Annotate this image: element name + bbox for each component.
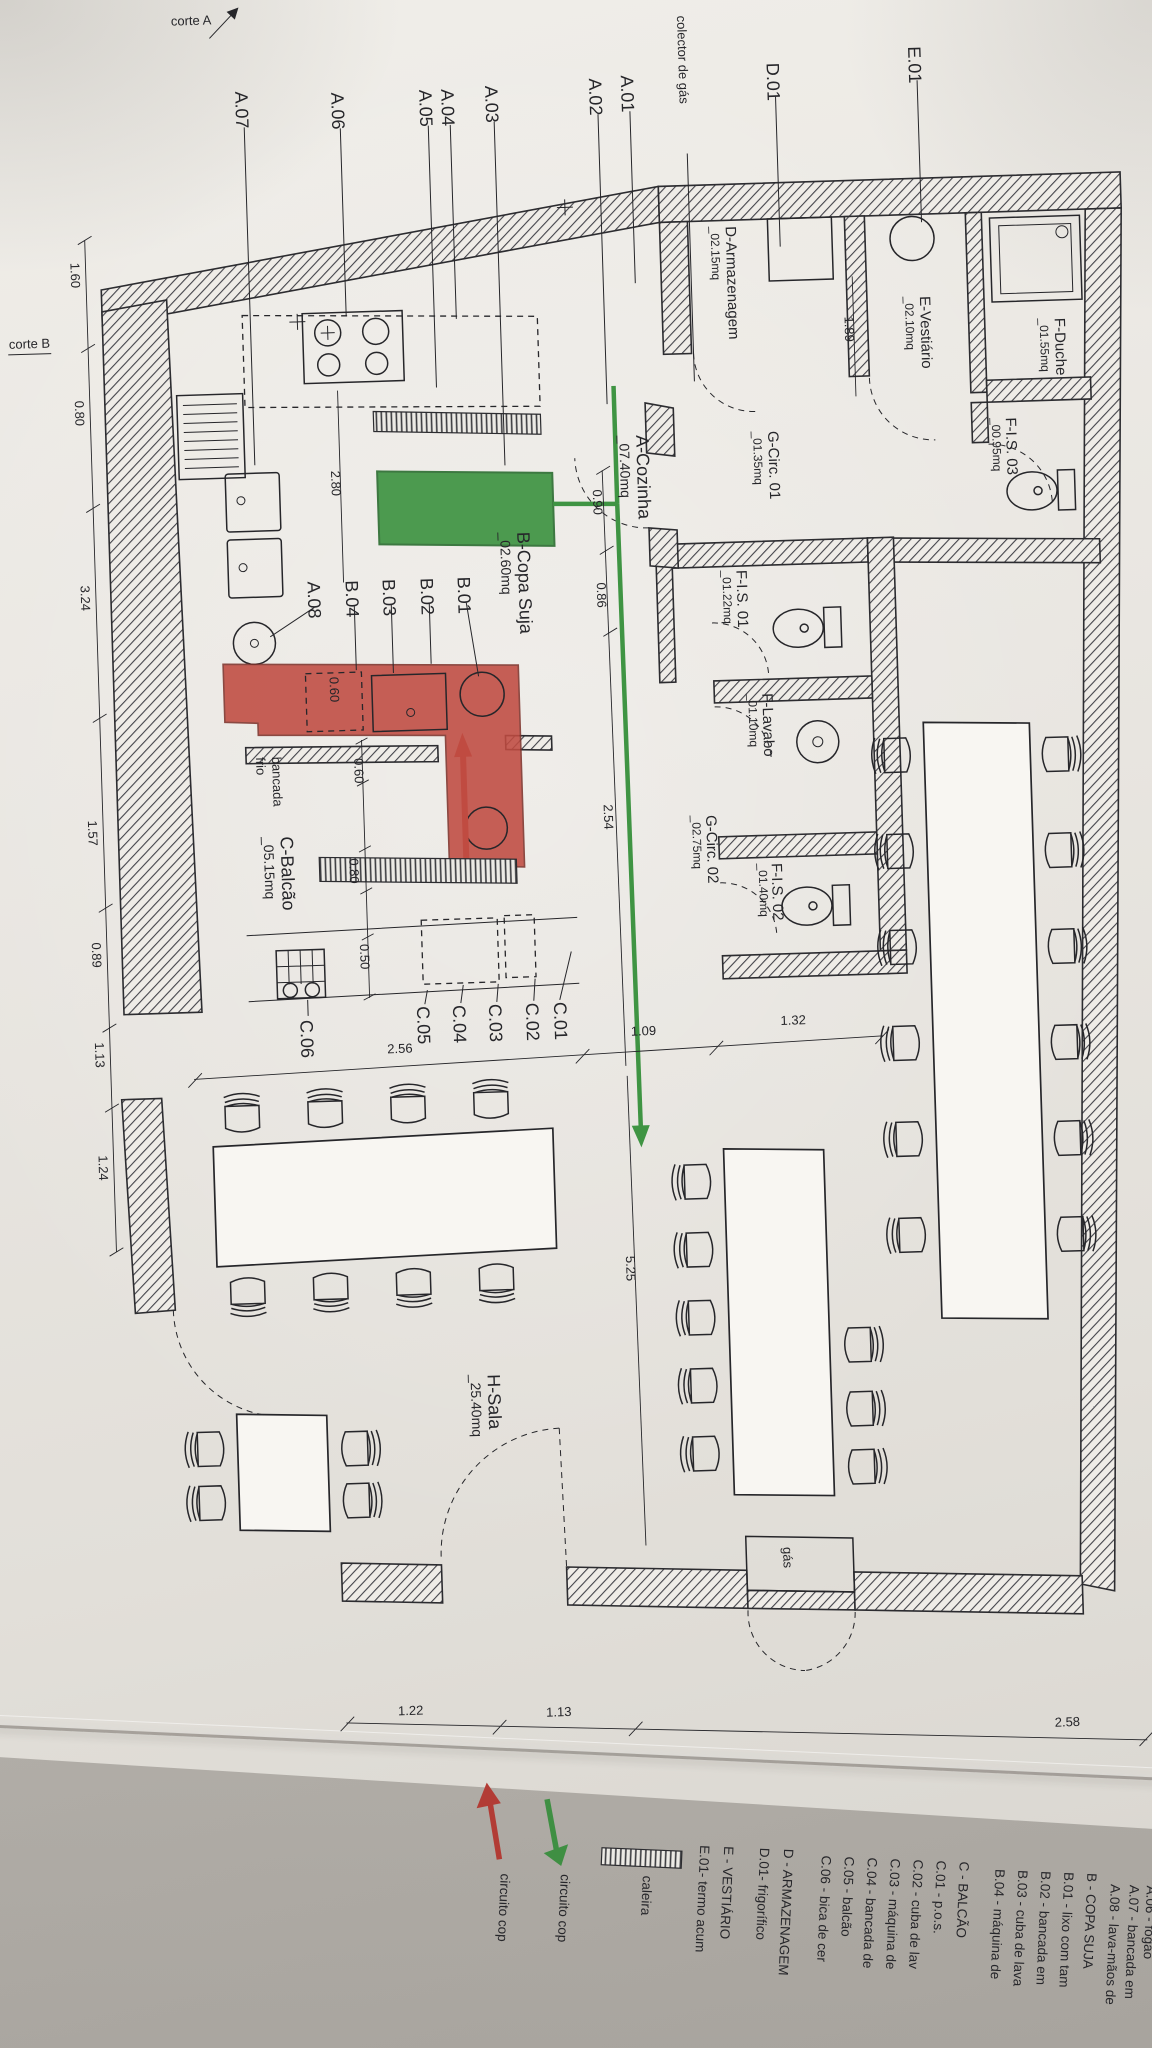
callout-b02: B.02	[416, 578, 437, 616]
svg-text:C-Balcão: C-Balcão	[277, 836, 299, 911]
svg-text:D.01- frigorífico: D.01- frigorífico	[753, 1847, 772, 1940]
counter-hatch-bar	[373, 406, 541, 439]
toilet-icon-is02	[781, 885, 850, 927]
svg-text:C.05 - balcão: C.05 - balcão	[838, 1856, 856, 1937]
svg-text:E-Vestiário: E-Vestiário	[916, 296, 935, 369]
toilet-icon-is03	[1006, 470, 1075, 512]
table-long-left	[213, 1128, 557, 1267]
label-circ02: G-Circ. 02 _02.75mq	[689, 814, 721, 884]
svg-text:frio: frio	[253, 757, 269, 776]
svg-text:caleira: caleira	[638, 1875, 655, 1916]
svg-text:_01.22mq: _01.22mq	[719, 569, 735, 624]
dim-254: 2.54	[601, 804, 617, 830]
c06-tap-icon	[276, 949, 325, 998]
label-circ01: G-Circ. 01 _01.35mq	[750, 430, 783, 500]
svg-text:C.03 - máquina de: C.03 - máquina de	[883, 1858, 903, 1970]
dim-189: 1.89	[841, 316, 857, 342]
label-bancada-frio: bancada frio	[253, 756, 286, 808]
dim-mid-2: 1.32	[780, 1012, 806, 1028]
table-long-right	[923, 719, 1048, 1322]
callout-a05: A.05	[415, 89, 436, 127]
callout-c02: C.02	[522, 1002, 543, 1041]
dim-bottom-2: 2.58	[1054, 1714, 1080, 1730]
svg-text:B.03 - cuba de lava: B.03 - cuba de lava	[1010, 1870, 1030, 1987]
svg-text:_02.15mq: _02.15mq	[708, 225, 724, 280]
toilet-icon-is01	[773, 607, 842, 649]
callouts: A.07 A.06 A.05 A.04 A.03 A.02 A.01 colec…	[229, 8, 955, 1059]
svg-text:G-Circ. 01: G-Circ. 01	[764, 431, 783, 500]
callout-a04: A.04	[437, 89, 458, 127]
svg-text:B.02 - bancada em: B.02 - bancada em	[1033, 1871, 1053, 1986]
callout-b01: B.01	[453, 576, 474, 614]
callout-c01: C.01	[550, 1002, 571, 1041]
corte-a-label: corte A	[171, 12, 212, 28]
svg-text:H-Sala: H-Sala	[484, 1374, 506, 1431]
dim-060-balcao: 0.60	[351, 758, 367, 784]
svg-text:A.07 - bancada em: A.07 - bancada em	[1122, 1885, 1142, 2000]
fridge-icon	[767, 217, 833, 281]
svg-text:_02.10mq: _02.10mq	[902, 295, 918, 350]
sink-icon	[225, 472, 283, 598]
svg-text:B.04 - máquina de: B.04 - máquina de	[988, 1869, 1008, 1980]
callout-a06: A.06	[327, 92, 348, 130]
stove-icon	[302, 311, 404, 384]
svg-text:_07.40mq: _07.40mq	[616, 434, 634, 498]
lavabo-basin-icon	[796, 720, 839, 763]
svg-text:B.01 - lixo com tam: B.01 - lixo com tam	[1056, 1872, 1076, 1988]
legend-circuit-green: circuito cop	[540, 1799, 576, 1942]
svg-text:A.08 - lava-mãos de: A.08 - lava-mãos de	[1103, 1884, 1123, 2005]
hand-wash-basin-icon	[233, 622, 276, 665]
callout-c06: C.06	[296, 1020, 317, 1059]
table-small	[237, 1411, 331, 1534]
svg-text:_00.95mq: _00.95mq	[989, 417, 1005, 472]
callout-d01: D.01	[762, 62, 783, 101]
callout-a08: A.08	[304, 581, 325, 619]
callout-a01: A.01	[617, 75, 638, 113]
svg-text:B - COPA SUJA: B - COPA SUJA	[1080, 1873, 1099, 1969]
callout-a02: A.02	[585, 78, 606, 116]
dim-left-5: 1.13	[92, 1042, 108, 1068]
callout-b04: B.04	[342, 580, 363, 618]
shower-icon	[989, 215, 1082, 302]
label-balcao: C-Balcão _05.15mq	[260, 835, 298, 911]
callout-a07: A.07	[231, 91, 252, 129]
label-sala: H-Sala _25.40mq	[467, 1373, 505, 1437]
label-vestiario: E-Vestiário _02.10mq	[902, 295, 935, 369]
dim-left-2: 3.24	[78, 585, 94, 611]
plan-group: gás	[0, 0, 1152, 1780]
caleira-swatch-icon	[601, 1848, 682, 1868]
dim-050: 0.50	[357, 944, 373, 970]
legend: circuito cop circuito cop caleira E.01- …	[469, 1782, 1152, 2007]
label-duche: F-Duche _01.55mq	[1037, 317, 1070, 376]
dim-090: 0.90	[590, 489, 606, 515]
svg-text:E - VESTIÁRIO: E - VESTIÁRIO	[717, 1846, 736, 1940]
dim-left-4: 0.89	[89, 942, 105, 968]
svg-text:_01.10mq: _01.10mq	[745, 693, 761, 748]
wall-bottom-b	[567, 1561, 748, 1614]
callout-e01: E.01	[904, 46, 925, 84]
wall-bottom-c	[854, 1565, 1083, 1621]
label-cozinha: A-Cozinha _07.40mq	[616, 434, 655, 521]
dim-left-1: 0.80	[72, 400, 88, 426]
svg-text:_01.35mq: _01.35mq	[750, 430, 766, 485]
wall-bottom-a	[341, 1560, 442, 1606]
label-is02: F-I.S. 02 _01.40mq	[756, 862, 787, 921]
dim-left-3: 1.57	[85, 820, 101, 846]
wall-left	[102, 300, 202, 1015]
dim-bottom-0: 1.22	[398, 1703, 424, 1719]
svg-text:D - ARMAZENAGEM: D - ARMAZENAGEM	[776, 1849, 797, 1976]
dim-mid-1: 1.09	[631, 1023, 657, 1039]
red-arrow-icon	[477, 1782, 502, 1809]
label-armazenagem: D-Armazenagem _02.15mq	[708, 225, 743, 340]
dim-525: 5.25	[623, 1256, 639, 1282]
svg-text:E.01- termo acum: E.01- termo acum	[693, 1845, 713, 1953]
grill-icon	[177, 394, 246, 480]
svg-text:_25.40mq: _25.40mq	[467, 1374, 485, 1438]
wall-left-stub	[122, 1098, 176, 1313]
green-circuit-arrow-icon	[632, 1125, 651, 1148]
svg-text:C - BALCÃO: C - BALCÃO	[953, 1861, 971, 1938]
callout-c04: C.04	[449, 1005, 470, 1044]
label-copa-suja: B-Copa Suja _02.60mq	[497, 531, 536, 636]
label-lavabo: F-Lavabo _01.10mq	[745, 692, 777, 757]
wall-right	[1037, 208, 1152, 1592]
table-long-middle	[724, 1146, 835, 1499]
legend-circuit-red: circuito cop	[471, 1782, 517, 1942]
legend-caleira: caleira	[599, 1848, 682, 1918]
dim-mid-0: 2.56	[387, 1041, 413, 1057]
callout-c03: C.03	[485, 1004, 506, 1043]
svg-text:C.06 - bica de cer: C.06 - bica de cer	[814, 1855, 834, 1963]
floor-plan-photo: gás	[0, 0, 1152, 2048]
svg-text:circuito cop: circuito cop	[495, 1873, 513, 1942]
counter-outline	[242, 306, 540, 415]
svg-text:bancada: bancada	[269, 756, 286, 807]
dim-060-copa: 0.60	[327, 677, 343, 703]
svg-text:F-Duche: F-Duche	[1051, 318, 1070, 376]
dim-086: 0.86	[594, 582, 610, 608]
floor-plan-drawing: gás	[0, 0, 1152, 2048]
dim-280: 2.80	[328, 470, 344, 496]
label-is03: F-I.S. 03 _00.95mq	[989, 416, 1021, 475]
dim-left-6: 1.24	[95, 1155, 111, 1181]
wall-top-slope	[99, 186, 663, 326]
label-is01: F-I.S. 01 _01.22mq	[719, 569, 751, 628]
svg-text:_02.75mq: _02.75mq	[689, 814, 705, 869]
svg-text:C.01 - p.o.s.: C.01 - p.o.s.	[931, 1860, 949, 1934]
dim-080: 0.80	[346, 858, 362, 884]
svg-text:_01.40mq: _01.40mq	[756, 862, 772, 917]
svg-text:D-Armazenagem: D-Armazenagem	[722, 226, 743, 340]
wall-top-right	[658, 172, 1121, 222]
red-circuit-line	[463, 753, 467, 875]
corte-b-label: corte B	[9, 336, 51, 352]
gas-label: gás	[780, 1547, 796, 1569]
callout-b03: B.03	[378, 579, 399, 617]
legend-entries: E.01- termo acum E - VESTIÁRIO D.01- fri…	[691, 1845, 1152, 2007]
svg-text:A-Cozinha: A-Cozinha	[632, 435, 655, 521]
gas-recess: gás	[746, 1533, 855, 1595]
svg-text:_02.60mq: _02.60mq	[497, 531, 515, 595]
dim-bottom-1: 1.13	[546, 1704, 572, 1720]
svg-text:_05.15mq: _05.15mq	[260, 836, 278, 900]
svg-text:C.02 - cuba de lav: C.02 - cuba de lav	[906, 1859, 926, 1969]
callout-a03: A.03	[481, 85, 502, 123]
svg-text:_01.55mq: _01.55mq	[1037, 317, 1053, 372]
water-heater-icon	[889, 216, 934, 261]
svg-text:B-Copa Suja: B-Copa Suja	[513, 532, 536, 636]
svg-text:circuito cop: circuito cop	[555, 1874, 573, 1943]
callout-colector-gas: colector de gás	[674, 15, 692, 104]
dim-left-0: 1.60	[67, 263, 83, 289]
svg-text:C.04 - bancada de: C.04 - bancada de	[860, 1857, 880, 1969]
callout-c05: C.05	[413, 1006, 434, 1045]
